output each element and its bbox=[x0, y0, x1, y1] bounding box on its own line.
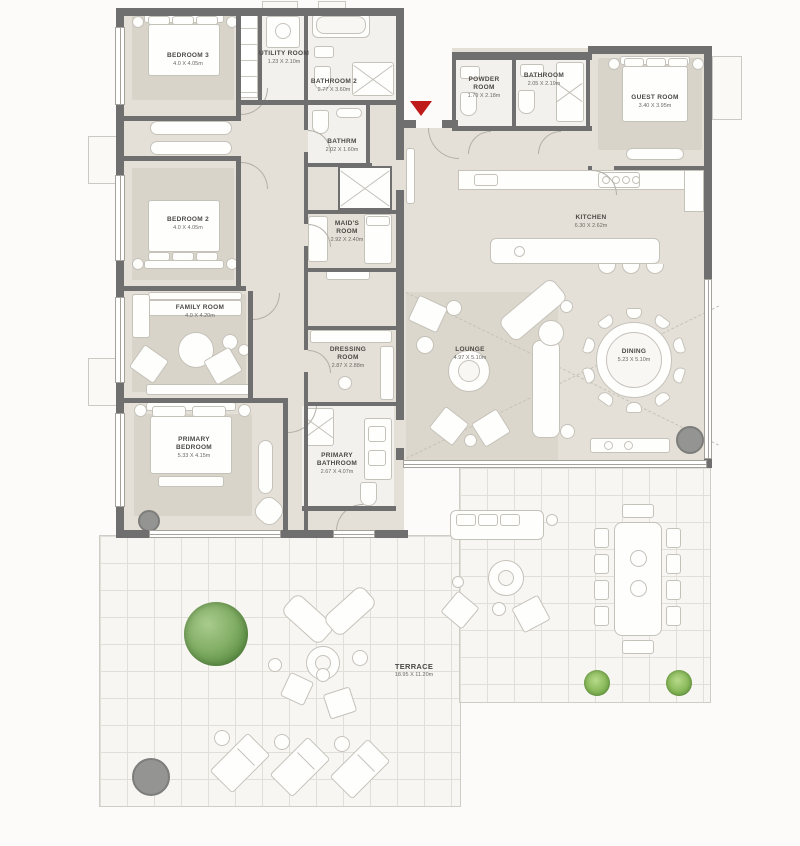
wall bbox=[452, 52, 592, 60]
wall bbox=[396, 8, 404, 124]
side-table-icon bbox=[560, 300, 573, 313]
wall bbox=[258, 8, 262, 100]
island-sink-icon bbox=[514, 246, 525, 257]
nightstand-icon bbox=[692, 58, 704, 70]
door-opening bbox=[396, 160, 404, 190]
bed-icon bbox=[622, 66, 688, 122]
side-table-icon bbox=[560, 424, 575, 439]
bench-icon bbox=[158, 476, 224, 487]
side-table-icon bbox=[452, 576, 464, 588]
wall bbox=[304, 100, 308, 530]
nightstand-icon bbox=[608, 58, 620, 70]
shrub-icon bbox=[584, 670, 610, 696]
cushion-icon bbox=[456, 514, 476, 526]
wall bbox=[452, 126, 592, 131]
toilet-icon bbox=[314, 66, 331, 90]
nightstand-icon bbox=[134, 404, 147, 417]
wall bbox=[374, 530, 408, 538]
outdoor-chair-icon bbox=[594, 554, 609, 574]
wall bbox=[122, 116, 241, 121]
outdoor-dining-table-icon bbox=[614, 522, 662, 636]
wall bbox=[512, 54, 516, 130]
tree-icon bbox=[184, 602, 248, 666]
toilet-icon bbox=[360, 482, 377, 506]
dresser-icon bbox=[150, 141, 232, 155]
side-table-icon bbox=[546, 514, 558, 526]
sink-icon bbox=[368, 426, 386, 442]
sink-icon bbox=[336, 108, 362, 118]
closet-icon bbox=[240, 12, 258, 98]
door-opening bbox=[396, 420, 404, 448]
window bbox=[705, 280, 711, 458]
door-opening bbox=[304, 224, 308, 246]
outdoor-chair-icon bbox=[594, 606, 609, 626]
stool-icon bbox=[338, 376, 352, 390]
sofa-back-icon bbox=[148, 292, 242, 300]
wall bbox=[588, 46, 712, 54]
side-table-icon bbox=[464, 434, 477, 447]
planter-icon bbox=[132, 758, 170, 796]
toilet-icon bbox=[518, 90, 535, 114]
pillow-icon bbox=[366, 216, 390, 226]
window bbox=[150, 531, 280, 537]
wall bbox=[236, 156, 241, 291]
outdoor-chair-icon bbox=[622, 504, 654, 518]
wall bbox=[248, 291, 253, 403]
pouf-icon bbox=[416, 336, 434, 354]
window-ledge bbox=[712, 56, 742, 120]
sofa-corner-icon bbox=[538, 320, 564, 346]
closet-icon bbox=[380, 346, 394, 400]
outdoor-table-icon bbox=[498, 570, 514, 586]
nightstand-icon bbox=[238, 404, 251, 417]
wall bbox=[452, 52, 456, 130]
sink-icon bbox=[368, 450, 386, 466]
wall bbox=[116, 530, 150, 538]
side-table-icon bbox=[268, 658, 282, 672]
shower-icon bbox=[556, 62, 584, 122]
cabinet-icon bbox=[258, 440, 273, 494]
cushion-icon bbox=[478, 514, 498, 526]
outdoor-chair-icon bbox=[666, 528, 681, 548]
window bbox=[116, 176, 124, 260]
dining-table-icon bbox=[606, 332, 662, 388]
sink-icon bbox=[474, 174, 498, 186]
wall bbox=[122, 398, 288, 403]
cushion-icon bbox=[500, 514, 520, 526]
wall bbox=[280, 530, 334, 538]
door-opening bbox=[592, 166, 614, 170]
sink-icon bbox=[520, 64, 544, 77]
planter-icon bbox=[676, 426, 704, 454]
lounger-pillow-icon bbox=[214, 730, 230, 746]
bathtub-basin-icon bbox=[316, 16, 366, 34]
window bbox=[334, 531, 374, 537]
wall bbox=[283, 398, 288, 538]
sofa-icon bbox=[532, 340, 560, 438]
sink-icon bbox=[460, 66, 480, 79]
floor-plan: BEDROOM 3 4.0 X 4.05m UTILITY ROOM 1.23 … bbox=[0, 0, 800, 846]
outdoor-chair-icon bbox=[594, 528, 609, 548]
planter-icon bbox=[138, 510, 160, 532]
wall bbox=[586, 54, 590, 130]
coffee-table-icon bbox=[458, 360, 480, 382]
dresser-icon bbox=[150, 121, 232, 135]
bed-icon bbox=[150, 416, 232, 474]
plate-icon bbox=[630, 550, 647, 567]
outdoor-chair-icon bbox=[666, 580, 681, 600]
nightstand-icon bbox=[132, 258, 144, 270]
wall bbox=[122, 286, 246, 291]
side-table-icon bbox=[492, 602, 506, 616]
outdoor-chair-icon bbox=[594, 580, 609, 600]
shower-icon bbox=[338, 166, 392, 210]
window bbox=[116, 414, 124, 506]
wall bbox=[302, 506, 396, 511]
window bbox=[404, 461, 706, 467]
wall bbox=[236, 100, 404, 105]
sink-icon bbox=[314, 46, 334, 58]
toilet-icon bbox=[460, 92, 477, 116]
bed-icon bbox=[148, 24, 220, 76]
console-icon bbox=[146, 384, 252, 395]
side-table-icon bbox=[316, 668, 330, 682]
nightstand-icon bbox=[132, 16, 144, 28]
console-icon bbox=[406, 148, 415, 204]
dining-chair-icon bbox=[626, 402, 642, 413]
headboard-icon bbox=[144, 260, 224, 269]
wall bbox=[308, 326, 396, 330]
sideboard-detail-icon bbox=[604, 441, 613, 450]
sofa-icon bbox=[148, 300, 242, 316]
wall bbox=[304, 163, 372, 167]
lounger-pillow-icon bbox=[274, 734, 290, 750]
shower-icon bbox=[352, 62, 394, 96]
pouf-icon bbox=[446, 300, 462, 316]
window bbox=[116, 298, 124, 382]
outdoor-chair-icon bbox=[666, 554, 681, 574]
wall bbox=[308, 402, 396, 406]
burner-icon bbox=[622, 176, 630, 184]
entry-marker-icon bbox=[410, 101, 432, 116]
burner-icon bbox=[632, 176, 640, 184]
lounger-pillow-icon bbox=[334, 736, 350, 752]
door-opening bbox=[304, 130, 308, 152]
bench-icon bbox=[626, 148, 684, 160]
bed-icon bbox=[148, 200, 220, 252]
sideboard-detail-icon bbox=[624, 441, 633, 450]
washer-drum-icon bbox=[275, 23, 291, 39]
wall bbox=[304, 8, 308, 104]
wall bbox=[366, 103, 370, 165]
chaise-icon bbox=[132, 294, 150, 338]
wall bbox=[704, 46, 712, 280]
side-table-icon bbox=[352, 650, 368, 666]
wall bbox=[308, 268, 396, 272]
closet-icon bbox=[310, 330, 392, 343]
outdoor-chair-icon bbox=[622, 640, 654, 654]
counter-icon bbox=[684, 170, 704, 212]
window bbox=[116, 28, 124, 104]
door-opening bbox=[304, 350, 308, 372]
wall bbox=[122, 156, 241, 161]
outdoor-chair-icon bbox=[666, 606, 681, 626]
wall bbox=[308, 210, 396, 214]
shrub-icon bbox=[666, 670, 692, 696]
plate-icon bbox=[630, 580, 647, 597]
entry-door-opening bbox=[416, 120, 442, 128]
